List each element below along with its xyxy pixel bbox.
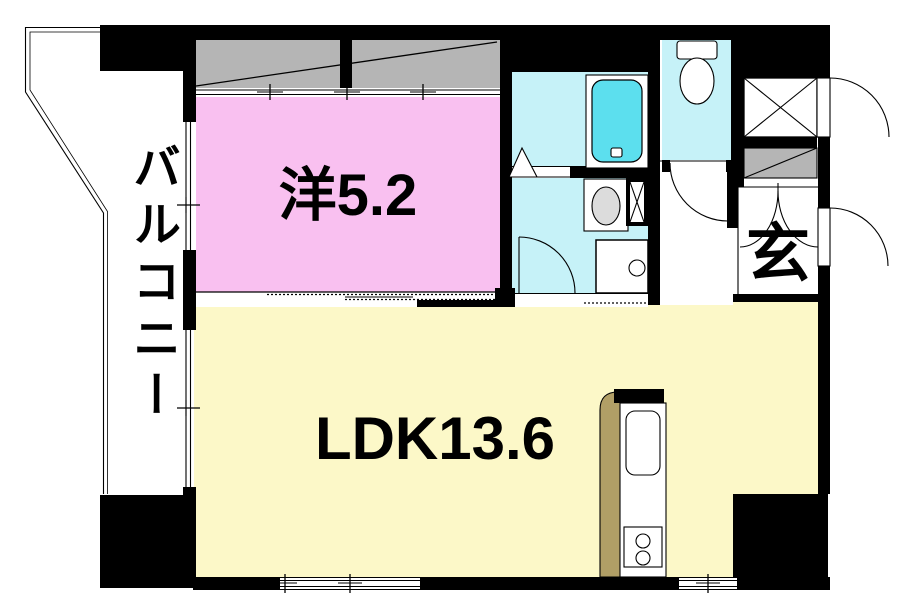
washroom-floor xyxy=(512,178,648,295)
bottom-window-left xyxy=(280,578,420,589)
bottom-window-right xyxy=(679,578,737,589)
wall-bath-divider xyxy=(570,166,648,178)
wall-right-lower xyxy=(818,266,830,494)
wall-top-corridor xyxy=(196,25,500,40)
wall-left-strip-upper xyxy=(183,71,196,122)
meter-box xyxy=(744,148,817,178)
ldk-label: LDK13.6 xyxy=(150,408,720,470)
western-room-window-band xyxy=(196,88,500,97)
wall-block-bottom-left xyxy=(100,495,196,588)
wall-right-upper xyxy=(818,137,830,208)
entrance-label: 玄 xyxy=(738,218,818,290)
toilet-room-floor xyxy=(662,40,731,160)
wall-bathroom-hall xyxy=(648,72,660,305)
wall-top-right-mass xyxy=(744,25,830,78)
wall-toilet-door-jamb-left xyxy=(662,160,670,172)
hallway-floor xyxy=(660,160,733,305)
washroom-landing xyxy=(513,293,648,307)
wall-block-bottom-right xyxy=(733,494,828,588)
bathroom-floor xyxy=(512,72,648,170)
floor-plan: バルコニー 洋5.2 LDK13.6 玄 xyxy=(0,0,914,615)
wall-bathroom-left xyxy=(500,72,512,307)
wall-corridor-pillar xyxy=(340,40,352,88)
wall-top-center-mass xyxy=(500,25,660,72)
bath-door-band xyxy=(505,166,571,178)
wall-below-closet xyxy=(744,137,817,148)
wall-left-strip-lower xyxy=(183,487,196,495)
wall-entrance-bottom xyxy=(733,294,818,302)
entrance-door xyxy=(818,208,888,266)
wall-mid-pillar xyxy=(495,288,515,307)
closet xyxy=(744,78,889,137)
wall-sliding-door-bar xyxy=(417,300,500,307)
balcony-label: バルコニー xyxy=(116,142,186,427)
western-room-label: 洋5.2 xyxy=(196,164,500,228)
wall-hall-entrance xyxy=(727,160,738,228)
wall-top-left-block xyxy=(100,25,196,71)
